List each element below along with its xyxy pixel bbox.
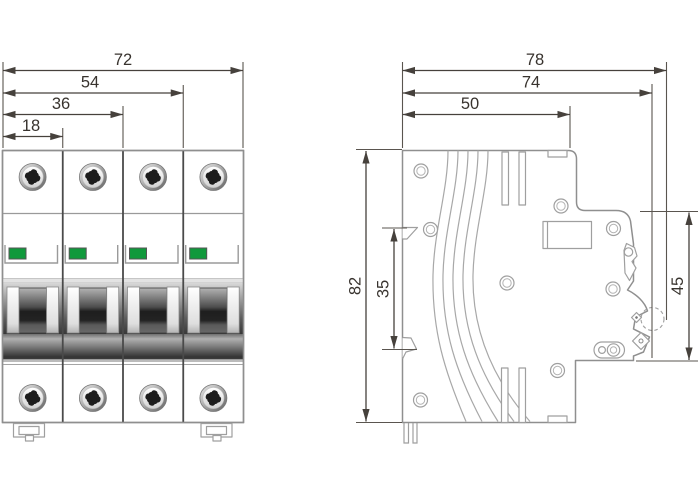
- toggle-handle: [67, 287, 119, 333]
- dim-width-36: 36: [3, 95, 123, 115]
- rivet-icon: [424, 223, 438, 237]
- screw-icon: [79, 385, 106, 412]
- dim-label: 35: [375, 280, 393, 298]
- status-indicator-green: [130, 248, 147, 259]
- bottom-edge-tab: [548, 416, 567, 423]
- rivet-icon: [551, 364, 565, 378]
- rivet-icon: [414, 164, 428, 178]
- front-dimensions: 72 54 36 18: [3, 51, 243, 148]
- status-indicator-green: [9, 248, 26, 259]
- dim-width-18: 18: [3, 117, 63, 137]
- toggle-handle: [188, 287, 240, 333]
- screw-icon: [200, 164, 227, 191]
- rivet-icon: [414, 393, 428, 407]
- dim-depth-50: 50: [403, 95, 571, 115]
- dim-height-82: 82: [347, 151, 367, 422]
- label-window: [543, 222, 592, 249]
- din-clip-left: [14, 424, 45, 442]
- dim-width-54: 54: [3, 74, 183, 94]
- dim-height-45: 45: [669, 213, 689, 361]
- din-clip-right: [201, 424, 232, 442]
- dim-label: 54: [81, 74, 99, 92]
- dim-label: 45: [669, 277, 687, 295]
- front-view: 72 54 36 18: [3, 51, 244, 441]
- dimension-drawing: 72 54 36 18: [0, 0, 700, 500]
- side-view: 78 74 50 82 35: [347, 51, 699, 443]
- toggle-handle: [7, 287, 59, 333]
- screw-icon: [200, 385, 227, 412]
- top-edge-tab: [548, 151, 567, 158]
- toggle-handle: [128, 287, 180, 333]
- dim-label: 82: [347, 277, 365, 295]
- dim-width-72: 72: [3, 51, 243, 71]
- rivet-icon: [607, 222, 621, 236]
- technical-drawing-canvas: 72 54 36 18: [0, 0, 700, 500]
- status-indicator-green: [190, 248, 207, 259]
- dim-label: 72: [114, 51, 132, 69]
- dim-height-35: 35: [375, 229, 395, 349]
- screw-icon: [19, 385, 46, 412]
- dim-depth-78: 78: [403, 51, 667, 71]
- rivet-icon: [606, 282, 620, 296]
- dim-label: 74: [522, 74, 540, 92]
- rivet-icon: [500, 276, 514, 290]
- din-clip-tab-side: [404, 423, 417, 443]
- dim-label: 78: [526, 51, 544, 69]
- rivet-icon: [554, 199, 568, 213]
- dim-label: 18: [22, 117, 40, 135]
- dim-depth-74: 74: [403, 74, 653, 94]
- screw-icon: [140, 385, 167, 412]
- toggle-lever-side: [624, 244, 637, 281]
- dim-label: 36: [52, 95, 70, 113]
- screw-icon: [79, 164, 106, 191]
- dim-label: 50: [461, 95, 479, 113]
- screw-icon: [19, 164, 46, 191]
- screw-icon: [140, 164, 167, 191]
- status-indicator-green: [69, 248, 86, 259]
